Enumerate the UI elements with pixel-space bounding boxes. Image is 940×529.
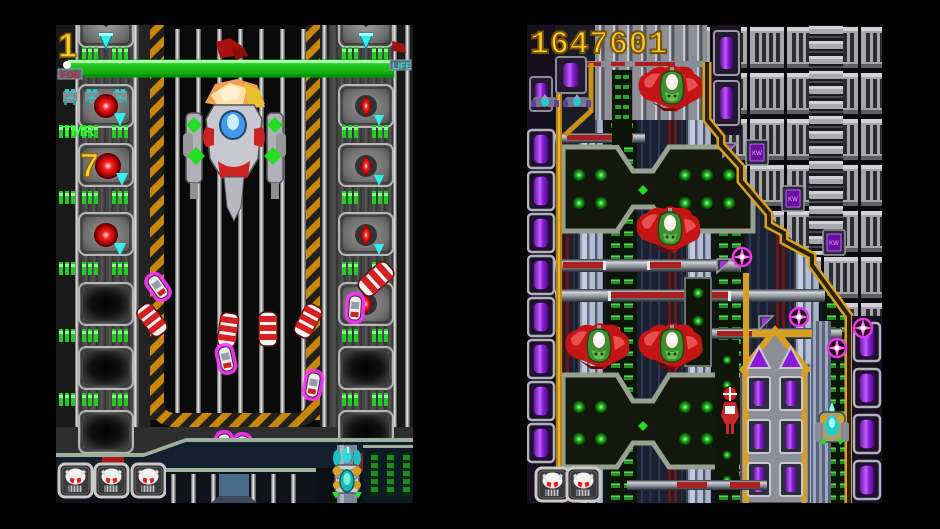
svg-text:1647601: 1647601: [530, 26, 668, 63]
svg-text:LIFE: LIFE: [392, 61, 412, 71]
svg-text:7: 7: [80, 147, 99, 185]
svg-text:1: 1: [58, 27, 77, 65]
svg-text:TMR: TMR: [62, 123, 95, 140]
svg-text:FOE: FOE: [61, 70, 80, 80]
